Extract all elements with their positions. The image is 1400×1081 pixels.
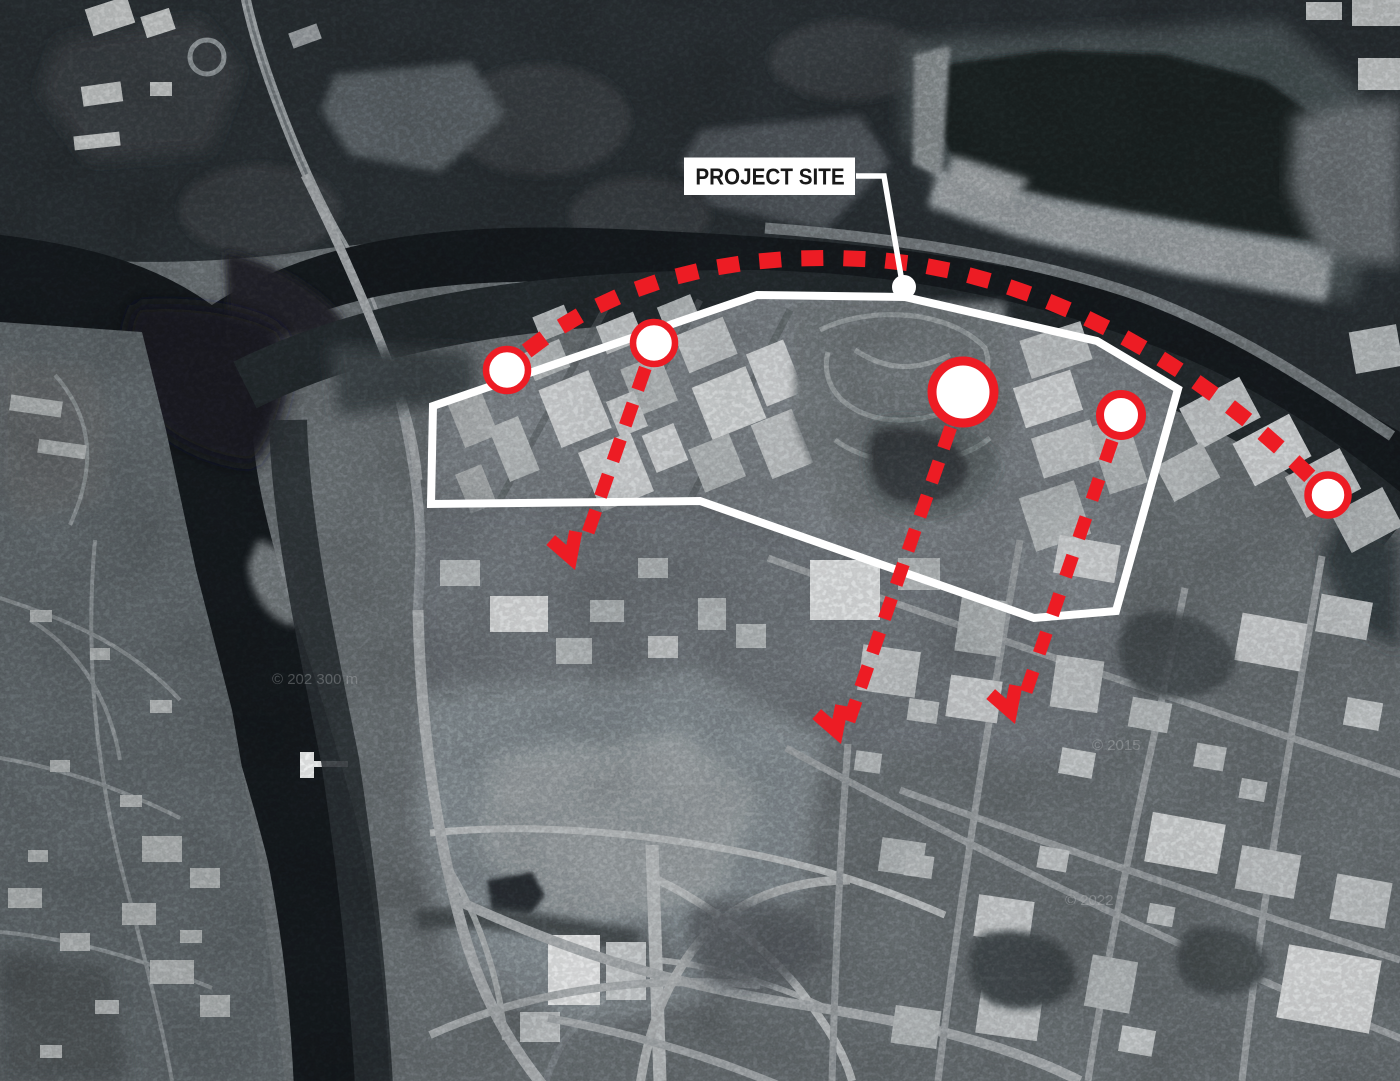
- svg-text:PROJECT SITE: PROJECT SITE: [695, 163, 844, 190]
